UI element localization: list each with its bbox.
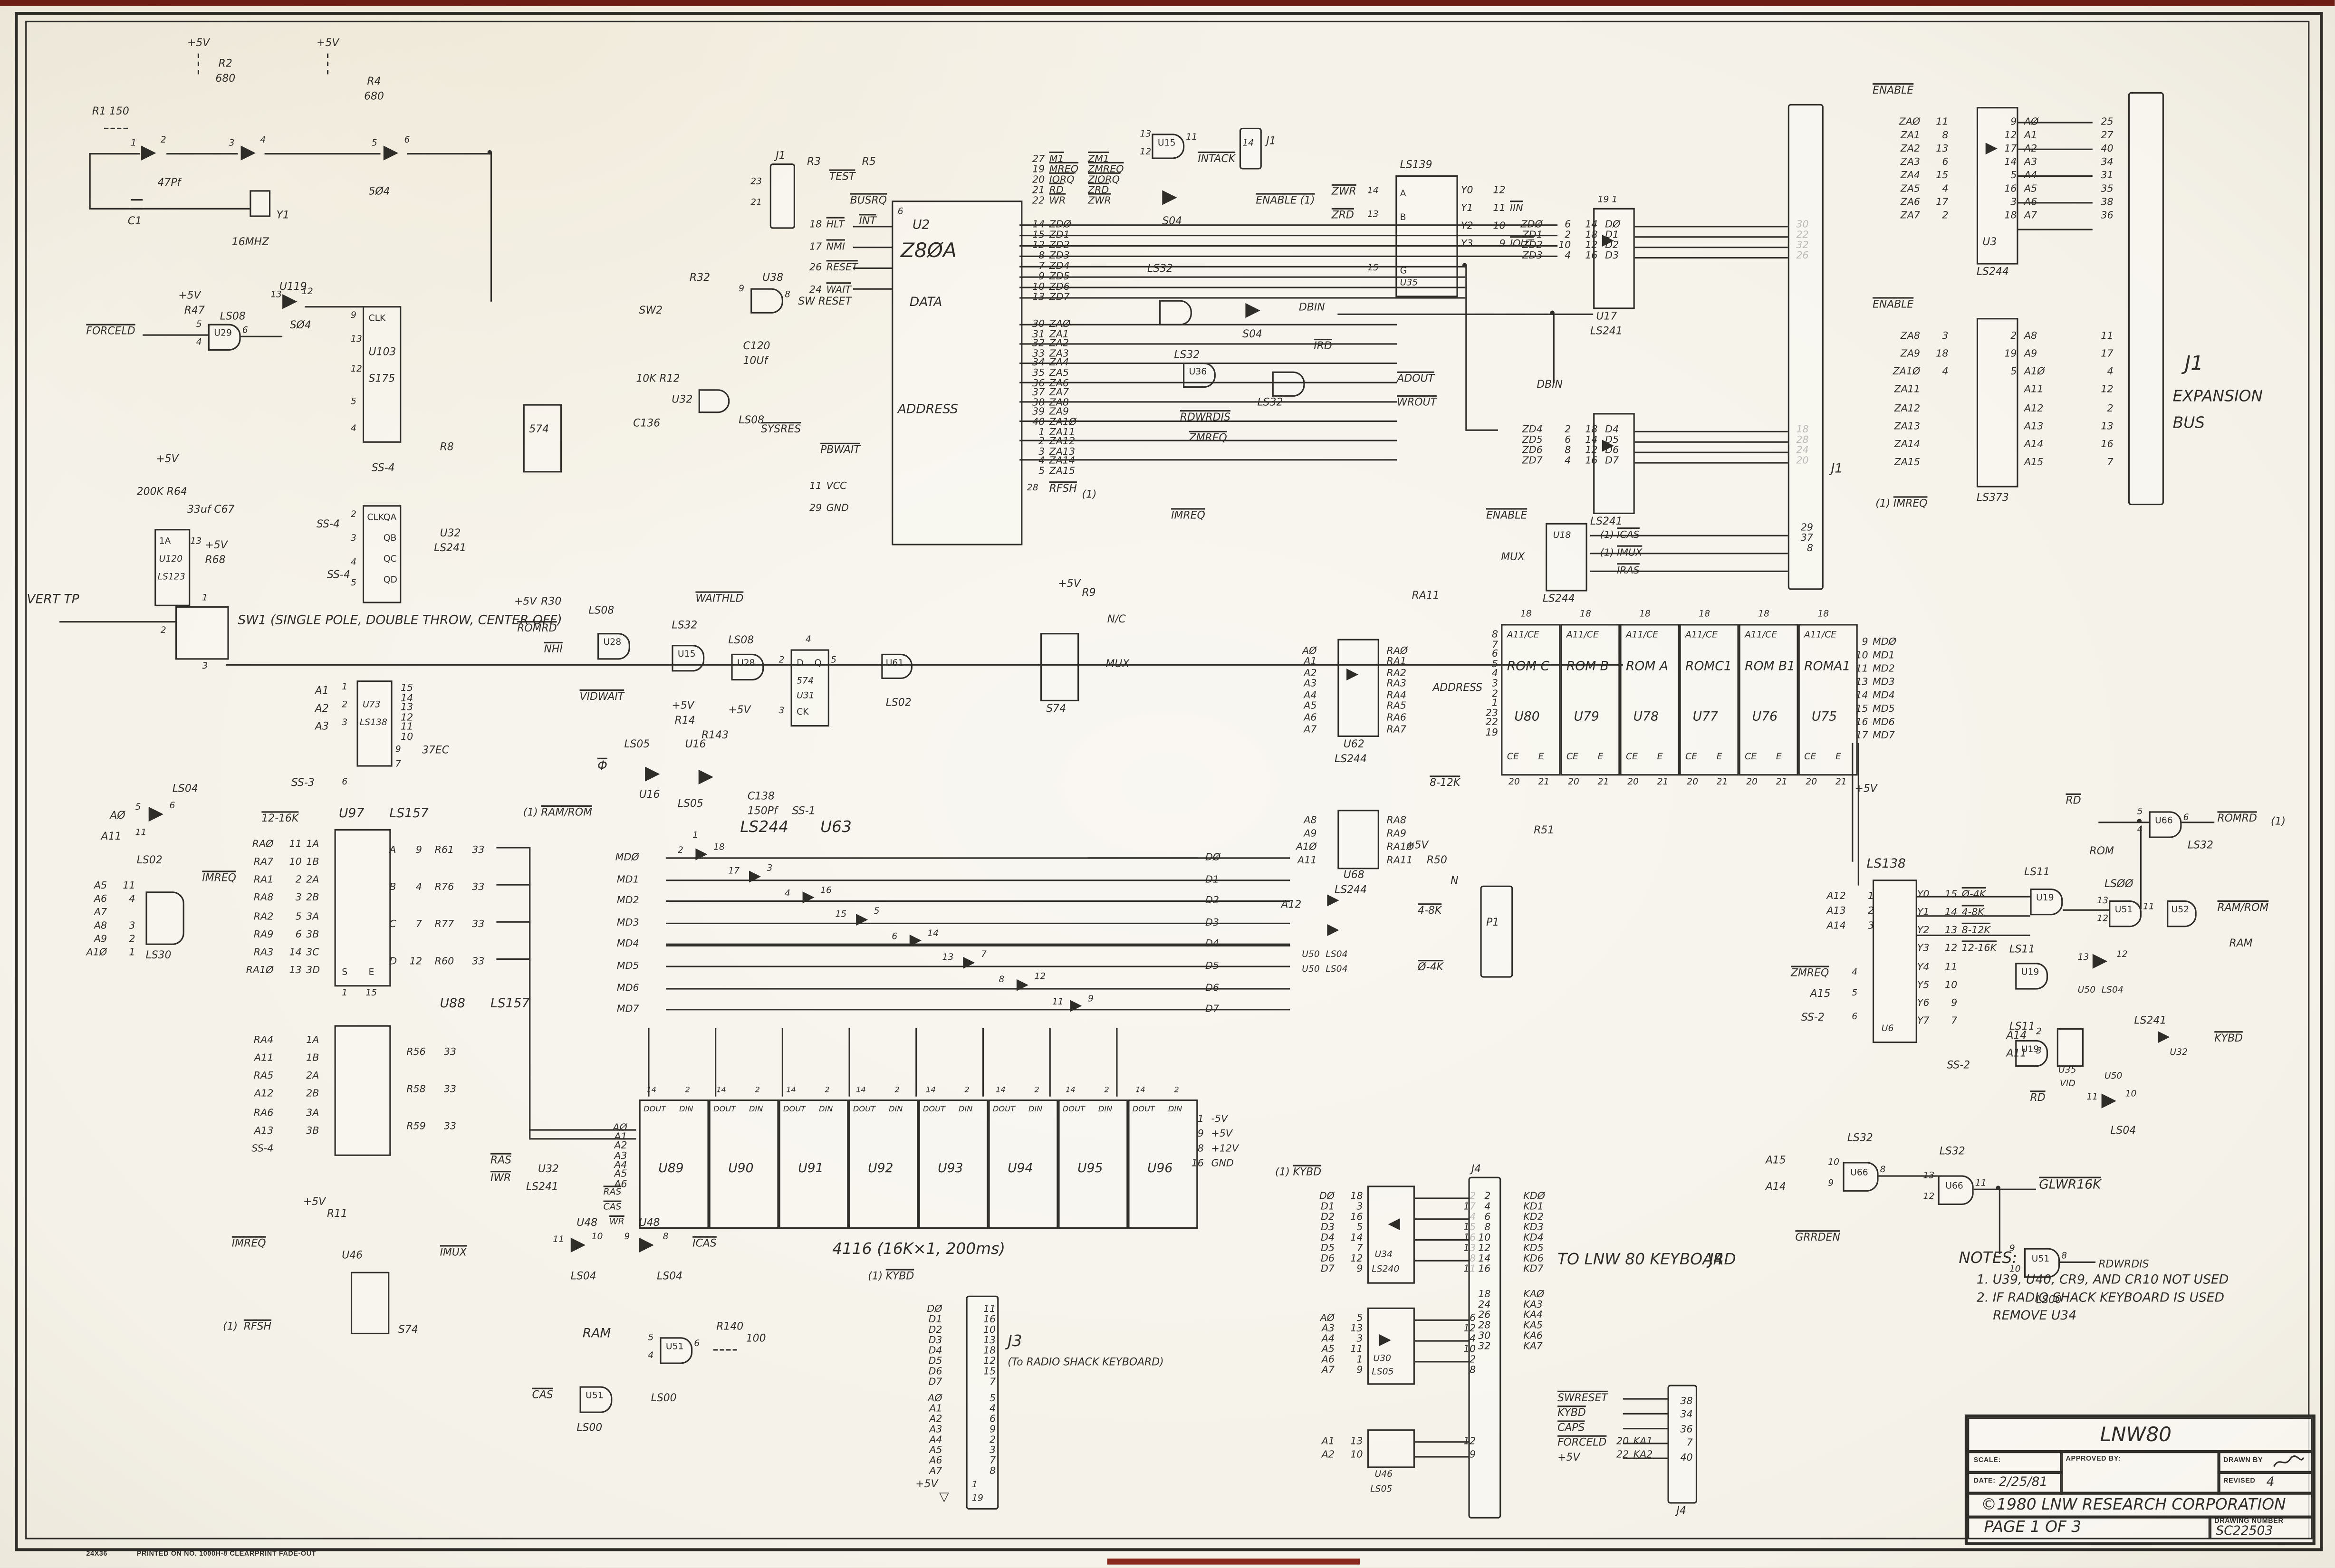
pin-20: 20 [1509, 779, 1520, 788]
j4-ka-pins: 18KAØ24KA326KA428KA530KA632KA7 [1473, 1290, 1556, 1352]
pin-14: 14 [926, 1088, 936, 1096]
pin: 4 [196, 339, 202, 348]
ic-u17-name: U17 [1596, 312, 1617, 323]
signal-enable1: ENABLE (1) [1256, 196, 1315, 207]
resistor-r4-value: 680 [364, 92, 384, 103]
rom-a11ce: A11/CE [1626, 631, 1658, 641]
u73-outputs: 151413121110 [393, 683, 413, 742]
j3-row: DØ11 [906, 1305, 996, 1315]
pin: 2 [678, 847, 683, 856]
pin: 3 [342, 719, 347, 728]
signal-iwr: IWR [490, 1174, 511, 1185]
pin-din: DIN [959, 1107, 972, 1115]
j3-row: D418 [906, 1346, 996, 1357]
cpu-pin-row: 29GND [799, 497, 849, 519]
gate-type-ls08b: LS08 [728, 636, 754, 647]
rom-name: ROM B [1566, 661, 1609, 675]
cap-c67: 33uf C67 [187, 505, 235, 516]
ic-u3-type: LS244 [1977, 268, 2009, 278]
inverter-gate-icon [241, 145, 256, 160]
gate-type-ls00b: LS00 [577, 1424, 602, 1434]
pin-y7: 7 [395, 761, 401, 770]
rom-refdes: U79 [1574, 712, 1599, 725]
wire [1415, 1456, 1469, 1458]
signal-forceld: FORCELD [1557, 1438, 1606, 1449]
wire [666, 901, 1290, 903]
label-nc: N/C [1107, 615, 1126, 626]
inverter-gate-icon [141, 145, 156, 160]
connector-j4-label2: J4 [1676, 1507, 1686, 1518]
signal-cas: CAS [532, 1391, 553, 1402]
inverter-gate-icon [1245, 303, 1260, 318]
ic-u103-type: S175 [368, 374, 395, 385]
j1-alo-pins: 1117412213167 [2093, 327, 2114, 472]
wire [89, 153, 91, 208]
j3-a-signals: AØ5A14A26A39A42A53A67A78 [906, 1394, 996, 1477]
signal-a11: A11 [101, 832, 122, 843]
md-row: 9MDØ [1847, 636, 1905, 649]
crystal-icon [250, 190, 270, 217]
ic-u6 [1873, 880, 1917, 1043]
j4-pin: 40 [1672, 1451, 1693, 1465]
signal-ram: RAM [2229, 939, 2253, 950]
md-row: 15MD5 [1847, 703, 1905, 716]
pin: 10 [2125, 1090, 2137, 1100]
signal-grrden: GRRDEN [1795, 1233, 1840, 1244]
ic-u120-type: LS123 [157, 574, 185, 583]
resistor-r9: R9 [1082, 588, 1095, 599]
signal-mux: MUX [1501, 553, 1525, 564]
signal-imreq: IMREQ [1893, 499, 1928, 510]
resistor-symbol [327, 54, 328, 75]
wire [2018, 122, 2092, 124]
mux-in-row: RA7101B [235, 853, 328, 871]
scan-edge-top [0, 0, 2335, 6]
j1-pin: 17 [2093, 345, 2114, 363]
resistor-symbol [713, 1349, 737, 1350]
j4-misc-pins: 383436740 [1672, 1394, 1693, 1465]
signal-kybd: KYBD [1293, 1168, 1321, 1179]
wire [143, 335, 208, 336]
j1-pin: 4 [2093, 363, 2114, 381]
pin: 10 [1828, 1159, 1839, 1168]
mux-out-row: R5633 [398, 1034, 461, 1071]
pin-en: 1 [692, 832, 698, 841]
cpu-pin-row: 18HLT [799, 214, 857, 236]
rom-a11ce: A11/CE [1804, 631, 1836, 641]
mux-out-row: A9R6133 [389, 832, 489, 869]
wire [2018, 229, 2092, 231]
pin-2: 2 [964, 1088, 969, 1096]
wire [89, 153, 140, 155]
ic-u32-type: LS241 [526, 1183, 558, 1194]
wire [59, 621, 175, 623]
v5-label: +5V [1406, 841, 1428, 852]
resistor-r32: R32 [690, 273, 710, 284]
j3-row: D615 [906, 1367, 996, 1377]
j3-row: A53 [906, 1446, 996, 1456]
pin: 12 [1923, 1193, 1934, 1203]
wire [1415, 1197, 1469, 1199]
signal-intack: INTACK [1198, 154, 1235, 165]
approved-label: APPROVED BY: [2066, 1456, 2121, 1463]
pin-14: 14 [856, 1088, 866, 1096]
wire [1623, 1428, 1668, 1430]
cpu-pin-row: 26RESET [799, 258, 857, 279]
connector-j1-addr-bar [2128, 92, 2164, 505]
cpu-left-pins-activelow: 18HLT17NMI26RESET24WAIT [799, 214, 857, 301]
signal-forceld: FORCELD [86, 327, 135, 338]
sig: A1Ø [1296, 841, 1317, 854]
gate-type-ls32b: LS32 [1940, 1147, 1965, 1158]
resistor-r50: R50 [1427, 856, 1447, 867]
pin: 12 [2097, 915, 2108, 925]
sig-row: A64 [77, 893, 140, 906]
schematic-sheet: +5V +5V R1 150 R2 680 R4 680 1 2 3 4 5 6… [0, 0, 2335, 1568]
sig: RA5 [1382, 701, 1419, 713]
pin: 6 [242, 327, 248, 336]
gate-type-ls32: LS32 [672, 621, 697, 632]
gate-type-ls02: LS02 [137, 856, 163, 867]
wire [241, 336, 283, 338]
drawn-label: DRAWN BY [2223, 1458, 2263, 1464]
pin-14: 14 [786, 1088, 796, 1096]
pin: 5 [372, 140, 377, 149]
sig: MD2 [595, 890, 645, 912]
sig: MD7 [595, 999, 645, 1021]
pin: 11 [1052, 998, 1064, 1008]
buffer-row: ZD7416D7 [1498, 456, 1638, 467]
pin-dout: DOUT [923, 1107, 945, 1115]
pin-21: 21 [1776, 779, 1787, 788]
pin-18: 18 [1758, 611, 1769, 620]
ic-u46b: U46 [342, 1251, 363, 1262]
pin-18: 18 [1699, 611, 1710, 620]
sig: RA9 [1382, 828, 1419, 841]
v5-label: +5V [303, 1197, 326, 1208]
inverter-gate-icon [571, 1238, 586, 1252]
pin: 5 [1852, 990, 1857, 999]
ic-s74-type: 574 [529, 425, 549, 436]
crystal-y1: Y1 [277, 211, 289, 222]
pwr-row: 8+12V [1183, 1141, 1244, 1156]
wire [2060, 1262, 2095, 1263]
gate-type-s04: S04 [1242, 330, 1262, 341]
v5-label: +5V [156, 455, 178, 466]
signal-waithld: WAITHLD [695, 594, 743, 605]
ram-refdes: U91 [798, 1163, 823, 1176]
pin-ce: CE [1804, 753, 1816, 763]
wire [666, 987, 1290, 989]
cap-c120-value: 10Uf [743, 356, 768, 367]
j1-pin: 8 [1792, 544, 1813, 554]
pin-21: 21 [1538, 779, 1549, 788]
gate-type-ls04: LS04 [173, 784, 198, 795]
pin: 4 [648, 1352, 653, 1362]
pin: 2 [2036, 1028, 2042, 1038]
u6-in-row: A132 [1813, 903, 1879, 918]
gate-u48b: U48 [639, 1218, 660, 1229]
sig: MDØ [595, 847, 645, 869]
signal-ss2: SS-2 [1801, 1013, 1825, 1024]
scale-label: SCALE: [1974, 1458, 2001, 1464]
notes-heading: NOTES: [1959, 1251, 2017, 1267]
j3-row: A67 [906, 1456, 996, 1466]
gate-u50: U50 [1302, 951, 1320, 960]
wire [1019, 382, 1397, 384]
junction-dot [1462, 263, 1467, 267]
screenshot-root: { "common":{"v5":"+5V","en":"ENABLE","en… [0, 0, 2335, 1568]
ram-chip: 14 2 DOUT DIN U89 [639, 1100, 709, 1229]
pin-21: 21 [1598, 779, 1609, 788]
j4-pin: 34 [1672, 1408, 1693, 1422]
wire [1019, 245, 1557, 247]
wire [853, 247, 892, 249]
sig: RA11 [1382, 854, 1419, 868]
signal-ramrom: RAM/ROM [2217, 903, 2268, 914]
mux-in-row: SS-4 [235, 1140, 328, 1158]
wire [1635, 247, 1788, 249]
ic-u103-name: U103 [368, 348, 396, 359]
rom-a11ce: A11/CE [1566, 631, 1599, 641]
wire [529, 1129, 636, 1131]
signal-kybd: KYBD [2214, 1034, 2243, 1045]
signal-a14: A14 [2006, 1031, 2027, 1042]
resistor-r47: R47 [184, 306, 205, 317]
u6-out-row: Y1144-8K [1917, 904, 1997, 922]
junction-dot [2137, 819, 2142, 823]
u6-out-row: Y510 [1917, 976, 1997, 994]
rom-chip: 18 A11/CE ROMC1 U77 CE E 20 21 [1680, 624, 1739, 775]
u62-outputs: RAØRA1RA2RA3RA4RA5RA6RA7 [1382, 645, 1419, 735]
ic-u62-type: LS244 [1335, 755, 1367, 766]
inverter-gate-icon [2102, 1093, 2116, 1108]
v5-label: +5V [1557, 1453, 1580, 1464]
pin: 12 [1140, 149, 1151, 158]
signal-kybd: KYBD [886, 1272, 914, 1283]
buffer-row: ZA832A8 [1875, 327, 2056, 345]
sig-row: A511 [77, 880, 140, 893]
wire [166, 153, 238, 155]
pin: 3 [229, 140, 235, 149]
gate-u50b: U50 [2104, 1073, 2123, 1082]
mux-out-row: R5933 [398, 1109, 461, 1146]
u30-rows: AØ56A31312A434A51110A612A798 [1305, 1313, 1479, 1376]
j4-kd-pins: 2KDØ4KD16KD28KD310KD412KD514KD616KD7 [1473, 1192, 1556, 1275]
switch-sw1 [175, 606, 229, 660]
mux-in-row: RA1Ø133D [235, 962, 328, 980]
ram-chip: 14 2 DOUT DIN U93 [918, 1100, 988, 1229]
j1-pin: 35 [2093, 183, 2114, 196]
pin: 5 [351, 398, 356, 408]
pin: 5 [196, 321, 202, 330]
pin-qa: QA [384, 514, 397, 524]
pin: 17 [728, 868, 740, 877]
wire [496, 958, 529, 960]
pin-e: E [1776, 753, 1782, 763]
wire [782, 1028, 784, 1097]
ic-u88-type: LS157 [490, 998, 529, 1012]
pin-e: E [1835, 753, 1841, 763]
gate-type-ls11: LS11 [2024, 868, 2050, 879]
wire [648, 1028, 650, 1097]
pin-2: 2 [685, 1088, 690, 1096]
pin: 28 [1027, 484, 1038, 494]
buffer-row: ZA12A12 [1875, 399, 2056, 417]
resistor-r140-value: 100 [746, 1334, 766, 1345]
gate-type-ls30: LS30 [145, 951, 171, 962]
u46-row: A1131220KA1 [1305, 1435, 1666, 1449]
v5-label: +5V [178, 291, 201, 302]
j3-row: A39 [906, 1425, 996, 1435]
pin: 1 [202, 594, 208, 604]
wire [1553, 314, 1555, 383]
sig: RA2 [1382, 668, 1419, 679]
pin-e: E [1717, 753, 1722, 763]
buffer-row: ZA3614A3 [1875, 156, 2056, 169]
pin-dout: DOUT [993, 1107, 1015, 1115]
v5-label: +5V [317, 38, 339, 49]
ic-ls138-type: LS138 [1867, 859, 1906, 872]
resistor-r51: R51 [1534, 826, 1554, 837]
pin-20: 20 [1806, 779, 1817, 788]
wire [1465, 430, 1498, 431]
signal-rd: RD [2030, 1093, 2045, 1104]
ic-u3-name: U3 [1982, 238, 1997, 249]
pin-14: 14 [996, 1088, 1006, 1096]
signal-dbin: DBIN [1299, 303, 1325, 314]
gate-u38 [750, 288, 783, 314]
sig: A9 [1296, 828, 1317, 841]
u6-out-row: Y411 [1917, 958, 1997, 976]
wire [1623, 1443, 1668, 1444]
buffer-row: ZA1Ø45A1Ø [1875, 363, 2056, 381]
wire [1019, 287, 1465, 289]
rom-name: ROM A [1626, 661, 1668, 675]
pin-15: 15 [365, 990, 377, 999]
pin: 13 [2097, 898, 2108, 907]
ic-u35b-name: U35 [2058, 1067, 2076, 1076]
md-row: 11MD2 [1847, 663, 1905, 676]
wire [982, 1028, 984, 1097]
ic-u32: U32 [538, 1165, 559, 1176]
ic-u46-type: LS05 [1370, 1486, 1392, 1495]
pin-21: 21 [1657, 779, 1669, 788]
cap-c1-value: 47Pf [157, 178, 181, 189]
v5-label: +5V [728, 706, 750, 717]
wire [1019, 224, 1557, 226]
signal-swreset: SWRESET [1557, 1394, 1608, 1405]
pin-19: 19 [972, 1495, 983, 1504]
sig: MD4 [595, 934, 645, 956]
gate-u15: U15 [678, 651, 696, 660]
v5-label: +5V [915, 1480, 938, 1491]
wire [1415, 1260, 1469, 1262]
wire [1635, 452, 1788, 454]
signal-wr: WR [609, 1218, 625, 1228]
j1-pin: 7 [2093, 454, 2114, 472]
gate-u51b: U51 [586, 1392, 604, 1402]
pin-qc: QC [384, 555, 397, 565]
ram-chip: 14 2 DOUT DIN U94 [988, 1100, 1058, 1229]
pin-2: 2 [755, 1088, 760, 1096]
pin-18: 18 [1520, 611, 1532, 620]
label-ss3: SS-3 [291, 779, 315, 790]
signal-ss2: SS-2 [1947, 1061, 1970, 1072]
j1-pin: 12 [2093, 381, 2114, 399]
rom-a11ce: A11/CE [1507, 631, 1539, 641]
pin-dout: DOUT [1063, 1107, 1085, 1115]
signal-vidwait: VIDWAIT [580, 692, 625, 703]
pin-e: E [368, 969, 374, 978]
signal-kybd: KYBD [1557, 1408, 1586, 1419]
j3-row: A26 [906, 1415, 996, 1425]
sig-row: A83 [77, 920, 140, 933]
wire [1999, 1189, 2001, 1254]
pin: 12 [351, 365, 362, 375]
u88-inputs: RA41AA111BRA52AA122BRA63AA133BSS-4 [235, 1031, 328, 1158]
note-1: (1) [1275, 1168, 1290, 1179]
wire [89, 208, 250, 210]
pin: 11 [1975, 1180, 1987, 1189]
signal-zmreq: ZMREQ [1189, 434, 1227, 445]
pin: 8 [2061, 1252, 2067, 1262]
pin: 4 [806, 636, 811, 645]
md-row: 16MD6 [1847, 716, 1905, 729]
ic-u46-name: U46 [1374, 1471, 1393, 1481]
wire [715, 1028, 717, 1097]
pin-dout: DOUT [713, 1107, 736, 1115]
wire [1623, 1398, 1668, 1400]
sig: RA3 [1382, 679, 1419, 690]
wire [1088, 857, 1198, 859]
v5-label: +5V [1058, 580, 1080, 591]
wire [1590, 535, 1788, 537]
j3-row: AØ5 [906, 1394, 996, 1404]
gate-u48: U48 [577, 1218, 597, 1229]
pin-din: DIN [889, 1107, 903, 1115]
mux-in-row: A111B [235, 1049, 328, 1067]
gate-type-ls05b: LS05 [678, 799, 703, 810]
pin-2: 2 [1104, 1088, 1109, 1096]
signal-phi: Φ [597, 761, 607, 774]
md-row: 13MD3 [1847, 676, 1905, 689]
u97-inputs: RAØ111ARA7101BRA122ARA832BRA253ARA963BRA… [235, 835, 328, 980]
j3-row: A14 [906, 1404, 996, 1415]
cpu-address-label: ADDRESS [898, 404, 958, 418]
inverter-gate-icon [1162, 190, 1177, 205]
sig: A5 [1296, 701, 1317, 713]
ic-u18-type: LS244 [1543, 594, 1575, 605]
j1-pin: 2 [2093, 399, 2114, 417]
pin-din: DIN [819, 1107, 833, 1115]
mux-out-row: R5833 [398, 1071, 461, 1109]
jumper-p1: P1 [1486, 918, 1499, 929]
sig-row: A1Ø1 [77, 947, 140, 960]
wire [1879, 1175, 1938, 1177]
ic-u88-name: U88 [440, 998, 465, 1012]
ic-u32-type: LS241 [434, 544, 466, 555]
cap-c138: C138 [748, 792, 775, 803]
wire [853, 226, 892, 228]
cpu-control-pins: 27M1ZM119MREQZMREQ20IORQZIORQ21RDZRD22WR… [1022, 154, 1124, 206]
ic-u97 [335, 829, 391, 986]
j4-row: 16KD7 [1473, 1264, 1556, 1275]
j3-d-signals: DØ11D116D210D313D418D512D615D77 [906, 1305, 996, 1388]
wire [2018, 202, 2092, 204]
zd-lo-rows: ZD4218D4ZD5614D5ZD6812D6ZD7416D7 [1498, 425, 1638, 467]
wire [226, 664, 1623, 666]
